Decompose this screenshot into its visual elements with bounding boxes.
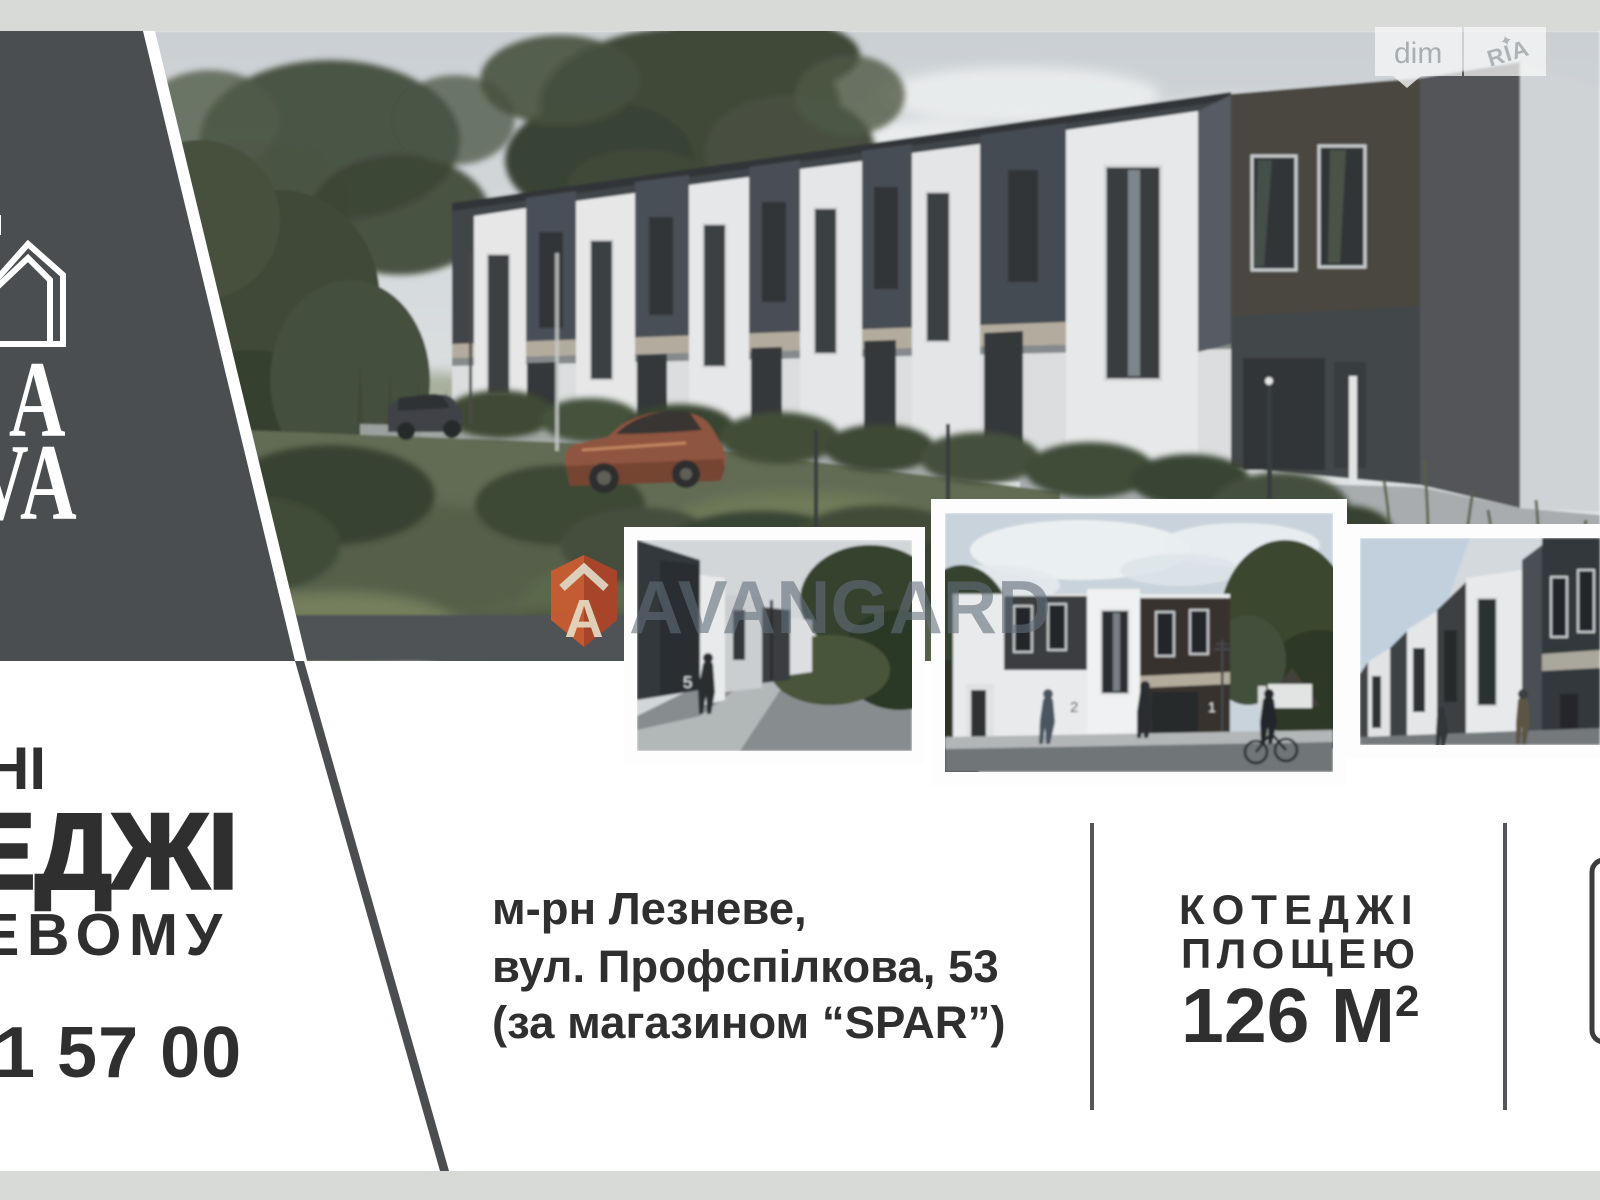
svg-text:A: A — [565, 589, 604, 649]
svg-text:2: 2 — [1070, 699, 1078, 716]
svg-text:1: 1 — [1208, 699, 1216, 715]
svg-text:5: 5 — [683, 673, 692, 692]
